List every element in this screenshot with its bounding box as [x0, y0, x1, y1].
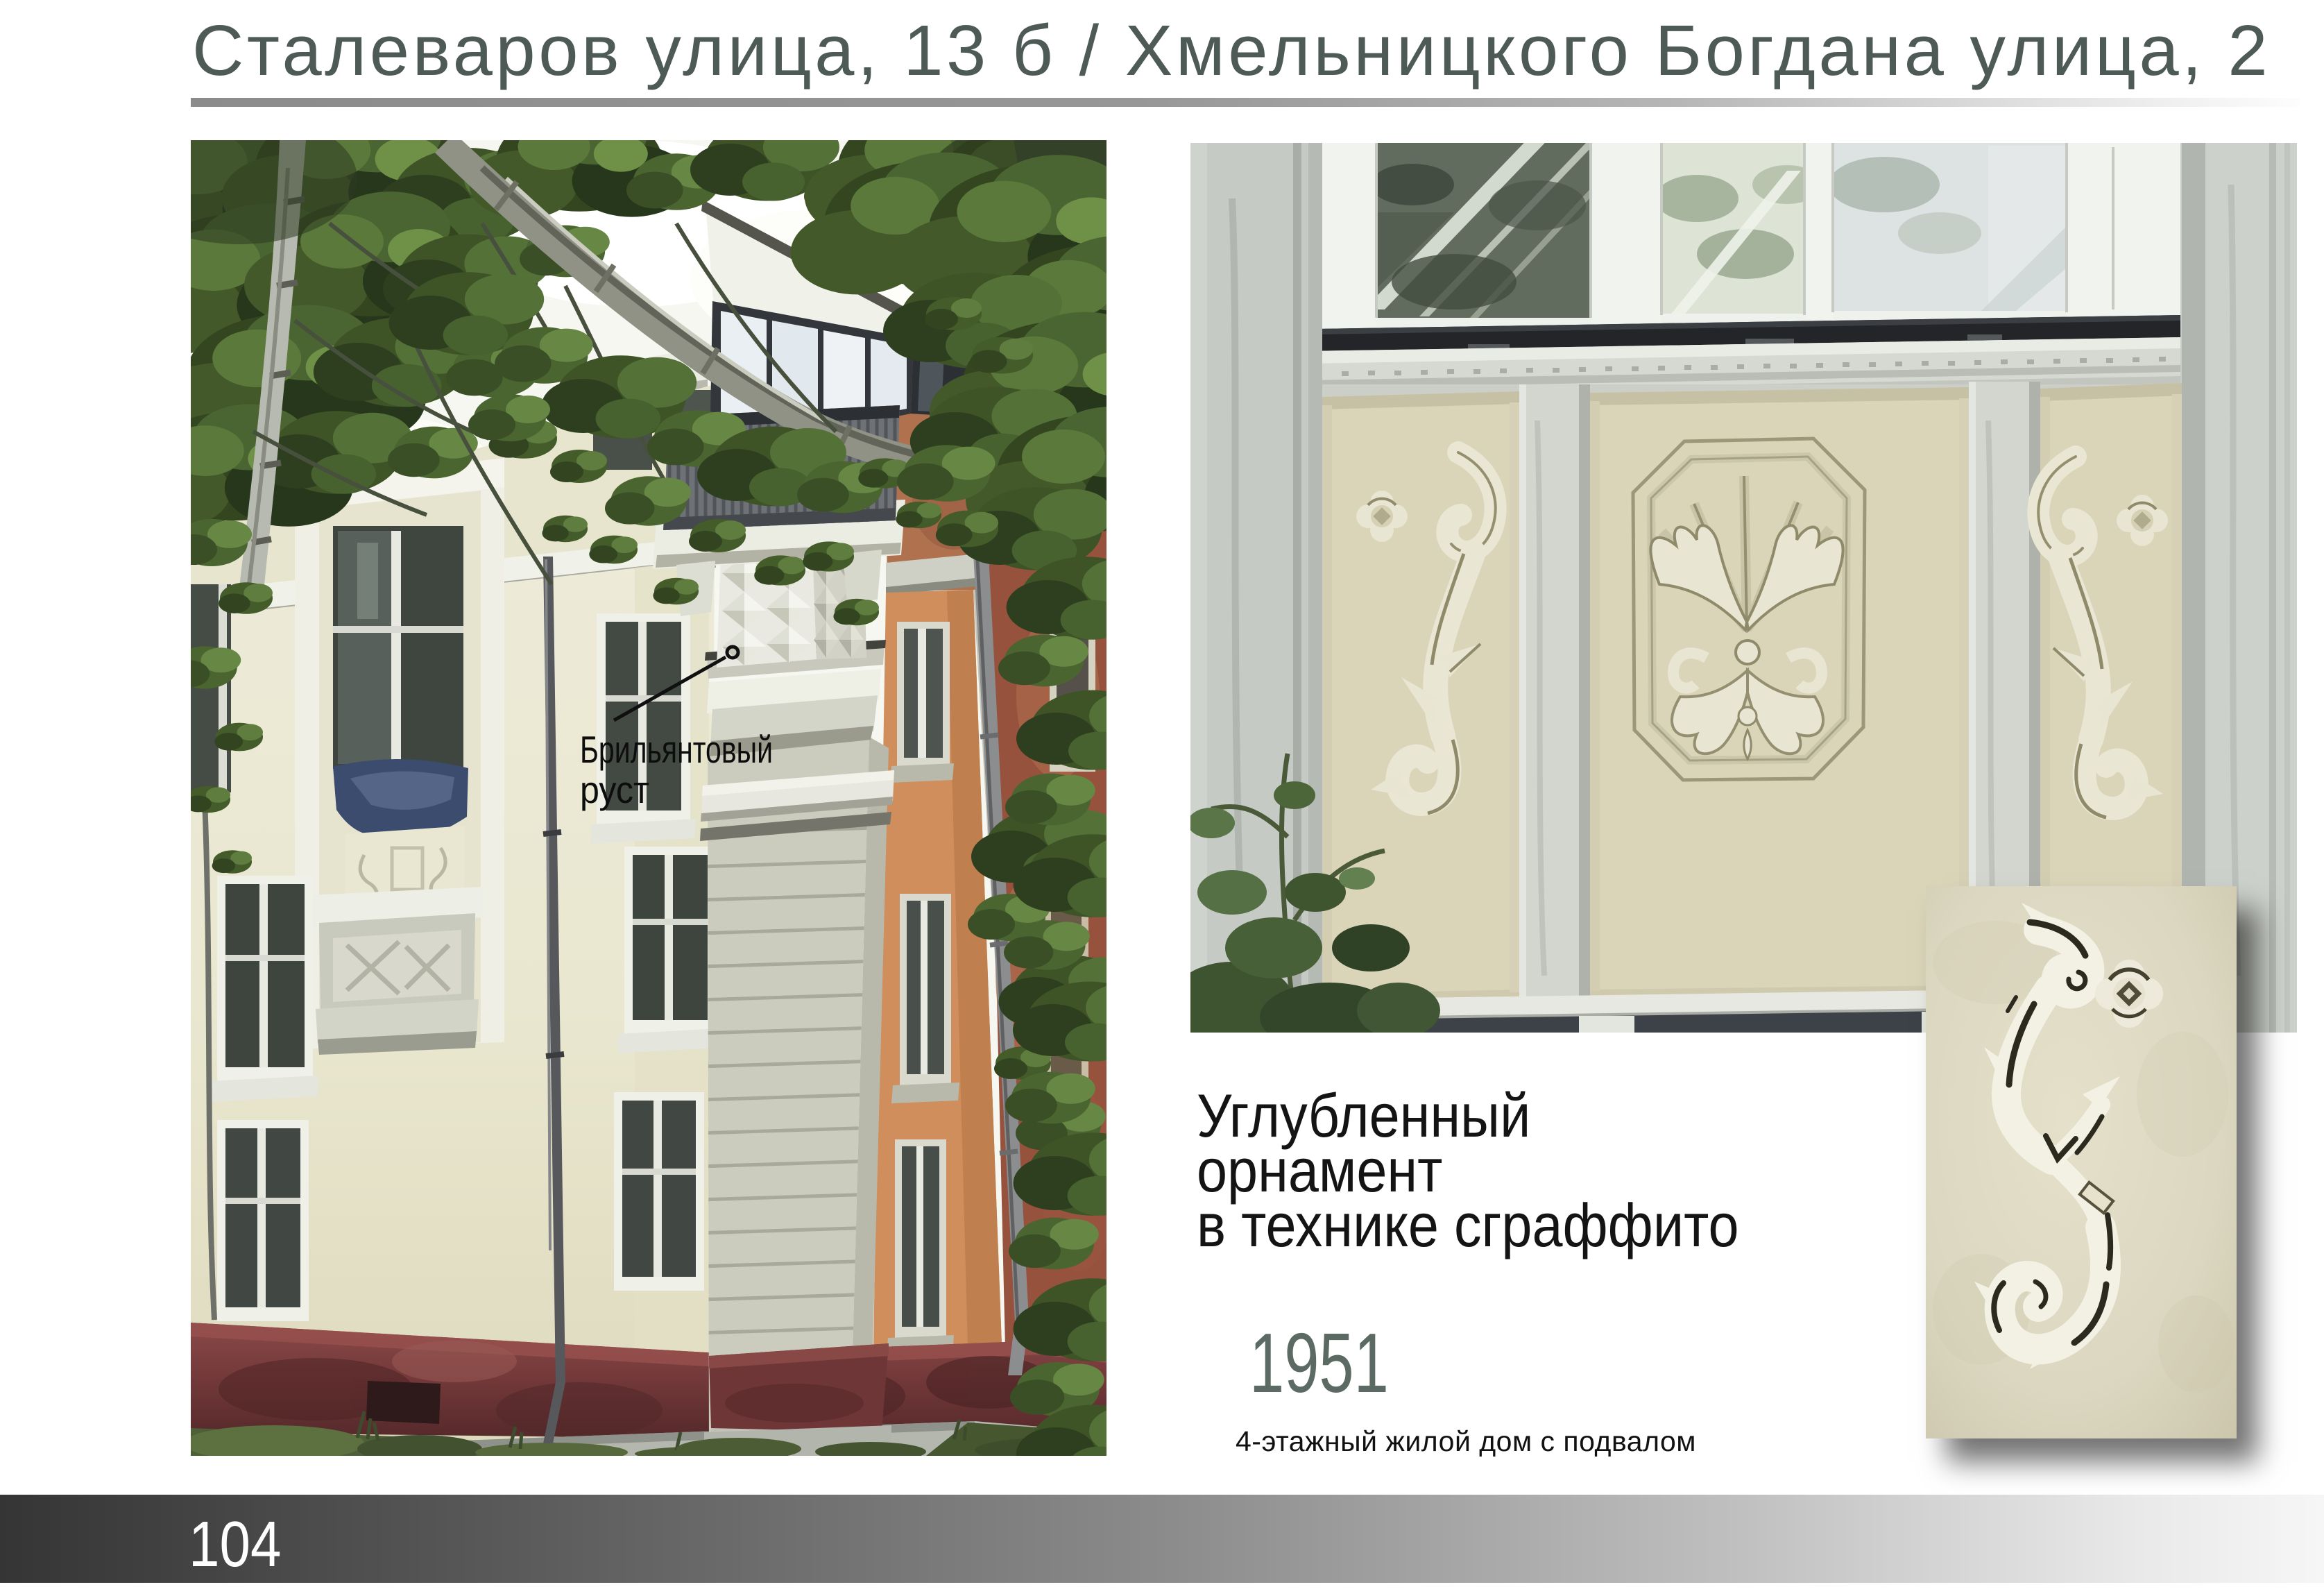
svg-text:Брильянтовый: Брильянтовый — [580, 728, 773, 771]
svg-text:руст: руст — [580, 768, 649, 811]
